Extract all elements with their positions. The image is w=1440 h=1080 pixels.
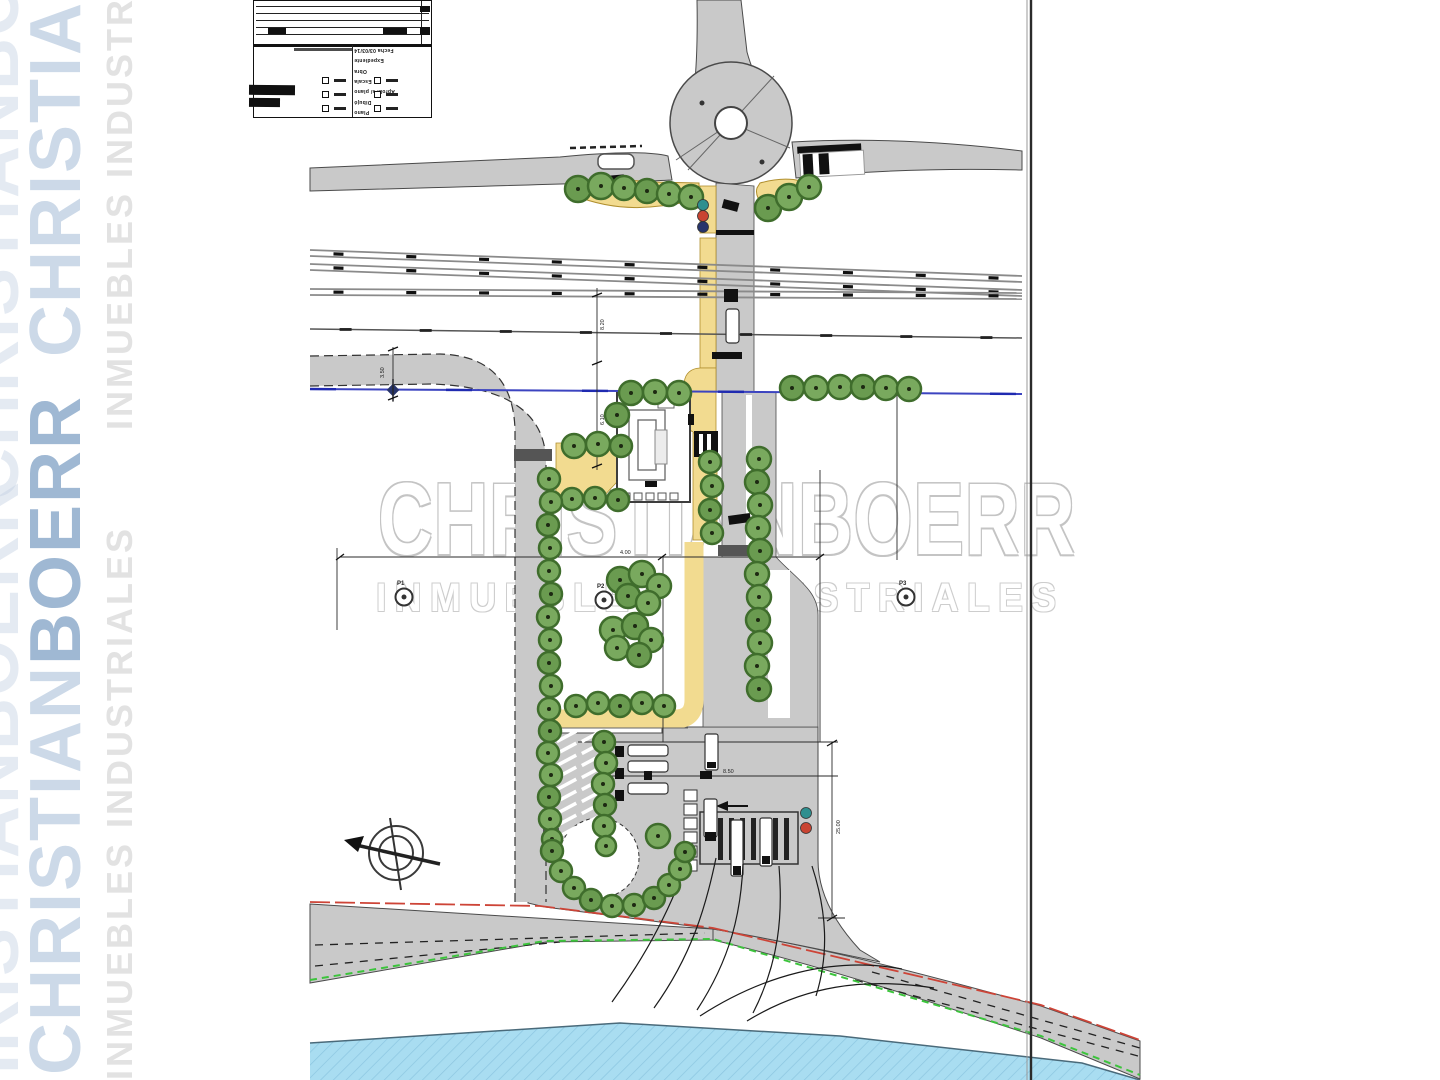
stamp-mark bbox=[249, 98, 280, 107]
checkbox-label-mark bbox=[386, 93, 398, 96]
tree-center bbox=[633, 624, 637, 628]
railway-tie bbox=[406, 291, 416, 294]
vehicle-glyph bbox=[645, 481, 657, 487]
revision-entry bbox=[268, 28, 286, 34]
tree-center bbox=[662, 704, 666, 708]
railway-tie bbox=[843, 293, 853, 296]
stamp-mark bbox=[249, 85, 295, 95]
tree-center bbox=[640, 572, 644, 576]
vehicle-glyph bbox=[615, 746, 624, 757]
vehicle-glyph bbox=[724, 289, 738, 302]
tree-center bbox=[602, 740, 606, 744]
tree-center bbox=[756, 526, 760, 530]
tree-center bbox=[632, 903, 636, 907]
crosswalk-square bbox=[684, 804, 697, 815]
titleblock-note bbox=[294, 48, 352, 51]
plan-shape bbox=[818, 153, 829, 174]
tree-center bbox=[548, 546, 552, 550]
dimension-label: 8.20 bbox=[600, 319, 606, 330]
railway-track bbox=[310, 250, 1022, 276]
tree-center bbox=[790, 386, 794, 390]
railway-tie bbox=[770, 268, 780, 272]
railway-tie bbox=[625, 263, 635, 267]
marker-dot-teal bbox=[698, 200, 709, 211]
railway-tie bbox=[697, 266, 707, 270]
plan-shape bbox=[310, 384, 546, 902]
tree-center bbox=[677, 391, 681, 395]
tree-center bbox=[546, 751, 550, 755]
plan-shape bbox=[760, 160, 765, 165]
revision-entry bbox=[420, 27, 430, 35]
survey-marker-label: P2 bbox=[597, 584, 605, 590]
tree-center bbox=[649, 638, 653, 642]
railway-tie bbox=[916, 274, 926, 278]
plan-shape bbox=[700, 101, 705, 106]
titleblock-checkbox bbox=[322, 91, 329, 98]
tree-center bbox=[572, 444, 576, 448]
tree-center bbox=[637, 653, 641, 657]
railway-tie bbox=[988, 276, 998, 280]
building-detail bbox=[670, 493, 678, 500]
tree-center bbox=[549, 592, 553, 596]
vehicle-glyph bbox=[733, 866, 741, 875]
railway-tie bbox=[333, 266, 343, 270]
tree-center bbox=[604, 844, 608, 848]
checkbox-label-mark bbox=[334, 107, 346, 110]
tree-center bbox=[626, 594, 630, 598]
tree-center bbox=[758, 641, 762, 645]
dimension-label: 8.50 bbox=[723, 769, 734, 775]
titleblock-field-label: Obra bbox=[354, 68, 428, 74]
marker-dot-navy bbox=[698, 222, 709, 233]
vehicle-glyph bbox=[644, 771, 652, 780]
railway-tie bbox=[843, 285, 853, 289]
railway-tie bbox=[552, 292, 562, 295]
marker-dot-red bbox=[801, 823, 812, 834]
water-body bbox=[310, 1023, 1140, 1080]
access-road-west bbox=[310, 354, 546, 902]
railway-tie bbox=[697, 280, 707, 284]
railway-tie bbox=[770, 282, 780, 286]
tree-center bbox=[618, 578, 622, 582]
tree-center bbox=[629, 391, 633, 395]
building-detail bbox=[658, 493, 666, 500]
tree-center bbox=[683, 850, 687, 854]
vehicle-glyph bbox=[688, 414, 694, 425]
truck bbox=[628, 745, 668, 756]
truck bbox=[704, 799, 717, 837]
tree-center bbox=[549, 684, 553, 688]
survey-marker-dot bbox=[602, 598, 607, 603]
tree-center bbox=[708, 460, 712, 464]
tree-center bbox=[755, 664, 759, 668]
tree-center bbox=[646, 601, 650, 605]
tree-center bbox=[814, 386, 818, 390]
road-line-dash bbox=[900, 335, 912, 338]
railway-tie bbox=[552, 274, 562, 278]
railway-tie bbox=[479, 272, 489, 276]
tree-center bbox=[610, 904, 614, 908]
tree-center bbox=[576, 187, 580, 191]
tree-center bbox=[807, 185, 811, 189]
railway-tie bbox=[479, 291, 489, 294]
tree-center bbox=[838, 385, 842, 389]
road-line-dash bbox=[340, 328, 352, 331]
railway-track bbox=[310, 256, 1022, 282]
tree-center bbox=[657, 584, 661, 588]
vehicle-glyph bbox=[700, 771, 712, 779]
titleblock-checkbox bbox=[322, 77, 329, 84]
crosswalk-square bbox=[684, 790, 697, 801]
tree-center bbox=[757, 687, 761, 691]
tree-center bbox=[546, 615, 550, 619]
road-line-dash bbox=[660, 332, 672, 335]
dock-bar bbox=[773, 818, 778, 860]
road-line-dash bbox=[420, 329, 432, 332]
plan-shape bbox=[718, 545, 748, 556]
bus-bay bbox=[598, 154, 634, 169]
tree-center bbox=[615, 646, 619, 650]
plan-shape bbox=[715, 107, 747, 139]
tree-center bbox=[645, 189, 649, 193]
tree-center bbox=[549, 500, 553, 504]
tree-center bbox=[572, 886, 576, 890]
railway-tie bbox=[625, 292, 635, 295]
checkbox-label-mark bbox=[386, 79, 398, 82]
tree-center bbox=[689, 195, 693, 199]
checkbox-label-mark bbox=[334, 93, 346, 96]
road-line-dash bbox=[980, 336, 992, 339]
tree-center bbox=[618, 704, 622, 708]
tree-center bbox=[574, 704, 578, 708]
road-south-1 bbox=[716, 183, 754, 392]
tree-center bbox=[548, 638, 552, 642]
plan-shape bbox=[699, 434, 703, 454]
building-detail bbox=[646, 493, 654, 500]
titleblock-field-label: Dibujó bbox=[354, 99, 428, 105]
railway-tie bbox=[333, 291, 343, 294]
railway-tie bbox=[770, 293, 780, 296]
dimension-label: 3.50 bbox=[380, 367, 386, 378]
checkbox-label-mark bbox=[334, 79, 346, 82]
tree-center bbox=[884, 386, 888, 390]
tree-center bbox=[653, 390, 657, 394]
truck bbox=[628, 761, 668, 772]
vehicle-glyph bbox=[762, 856, 770, 864]
railway-tie bbox=[479, 258, 489, 262]
plan-shape bbox=[700, 238, 716, 368]
railway-track bbox=[310, 295, 1022, 299]
tree-center bbox=[593, 496, 597, 500]
railway-tie bbox=[625, 277, 635, 281]
tree-center bbox=[619, 444, 623, 448]
tree-center bbox=[667, 883, 671, 887]
tree-center bbox=[907, 387, 911, 391]
railway-tie bbox=[697, 293, 707, 296]
tree-center bbox=[550, 849, 554, 853]
railway-tie bbox=[916, 294, 926, 297]
tree-center bbox=[589, 898, 593, 902]
tree-center bbox=[861, 385, 865, 389]
tree-center bbox=[757, 595, 761, 599]
tree-center bbox=[549, 773, 553, 777]
tree-center bbox=[656, 834, 660, 838]
marker-dot-teal bbox=[801, 808, 812, 819]
tree-center bbox=[766, 206, 770, 210]
railway-track bbox=[310, 264, 1022, 290]
tree-center bbox=[546, 523, 550, 527]
railway-track bbox=[310, 289, 1022, 293]
revision-entry bbox=[420, 6, 430, 12]
road-line-dash bbox=[820, 334, 832, 337]
railway-tie bbox=[843, 271, 853, 275]
north-arrow-head bbox=[344, 836, 364, 852]
titleblock-checkbox bbox=[322, 105, 329, 112]
dock-bar bbox=[784, 818, 789, 860]
truck bbox=[726, 309, 739, 343]
plan-shape bbox=[655, 430, 667, 464]
crosswalk-west-road bbox=[514, 449, 552, 461]
vehicle-glyph bbox=[707, 762, 716, 768]
survey-marker-label: P3 bbox=[899, 581, 907, 587]
tree-center bbox=[710, 484, 714, 488]
tree-center bbox=[603, 803, 607, 807]
revision-entry bbox=[383, 28, 407, 34]
tree-center bbox=[547, 661, 551, 665]
tree-center bbox=[758, 503, 762, 507]
tree-center bbox=[548, 817, 552, 821]
tree-center bbox=[547, 477, 551, 481]
tree-center bbox=[602, 824, 606, 828]
railway-tie bbox=[989, 294, 999, 297]
titleblock-field-label: Fecha 03/03/14 bbox=[354, 47, 428, 53]
survey-marker-label: P1 bbox=[397, 581, 405, 587]
tree-center bbox=[616, 498, 620, 502]
dock-bar bbox=[718, 818, 723, 860]
truck bbox=[628, 783, 668, 794]
marker-dot-red bbox=[698, 211, 709, 222]
road-line-dash bbox=[580, 331, 592, 334]
tree-center bbox=[756, 618, 760, 622]
title-block: Fecha 03/03/14ExpedienteObraEscalaAprob.… bbox=[253, 0, 432, 118]
revision-line bbox=[256, 34, 429, 35]
site-plan-drawing: 4.008.206.103.5025.008.50P1P2P3 bbox=[0, 0, 1440, 1080]
building-detail bbox=[634, 493, 642, 500]
survey-marker-dot bbox=[904, 595, 909, 600]
dimension-label: 25.00 bbox=[836, 820, 842, 834]
tree-center bbox=[678, 867, 682, 871]
plan-shape bbox=[310, 354, 515, 902]
revision-line bbox=[256, 13, 429, 14]
road-line-dash bbox=[740, 333, 752, 336]
tree-center bbox=[599, 184, 603, 188]
checkbox-label-mark bbox=[386, 107, 398, 110]
plan-shape bbox=[570, 146, 642, 148]
titleblock-field-label: Expediente bbox=[354, 57, 428, 63]
tree-center bbox=[615, 413, 619, 417]
tree-center bbox=[596, 442, 600, 446]
vehicle-glyph bbox=[705, 832, 716, 841]
tree-center bbox=[787, 195, 791, 199]
railway-tie bbox=[406, 269, 416, 273]
titleblock-checkbox bbox=[374, 91, 381, 98]
tree-center bbox=[604, 761, 608, 765]
tree-center bbox=[710, 531, 714, 535]
tree-center bbox=[559, 869, 563, 873]
tree-center bbox=[667, 192, 671, 196]
vehicle-glyph bbox=[712, 352, 742, 359]
crosswalk-square bbox=[684, 818, 697, 829]
tree-center bbox=[548, 729, 552, 733]
titleblock-checkbox bbox=[374, 105, 381, 112]
tree-center bbox=[570, 497, 574, 501]
railway-tie bbox=[333, 252, 343, 256]
dock-bar bbox=[751, 818, 756, 860]
page-canvas: CHRISTIANBOERR CHRISTIANBOERR CHRISTIANB… bbox=[0, 0, 1440, 1080]
road-line-dash bbox=[500, 330, 512, 333]
vehicle-glyph bbox=[716, 230, 754, 235]
survey-marker-dot bbox=[402, 595, 407, 600]
tree-center bbox=[622, 186, 626, 190]
tree-center bbox=[601, 782, 605, 786]
vehicle-glyph bbox=[615, 768, 624, 779]
tree-center bbox=[611, 628, 615, 632]
tree-center bbox=[640, 701, 644, 705]
tree-center bbox=[758, 549, 762, 553]
tree-center bbox=[652, 896, 656, 900]
railway-tie bbox=[406, 255, 416, 259]
tree-center bbox=[547, 569, 551, 573]
railway-tie bbox=[916, 288, 926, 292]
dimension-label: 4.00 bbox=[620, 550, 631, 556]
titleblock-divider bbox=[352, 45, 353, 117]
titleblock-checkbox bbox=[374, 77, 381, 84]
revision-line bbox=[256, 6, 429, 7]
tree-center bbox=[755, 480, 759, 484]
vehicle-glyph bbox=[615, 790, 624, 801]
tree-center bbox=[757, 457, 761, 461]
revision-line bbox=[256, 20, 429, 21]
railway-tie bbox=[552, 260, 562, 264]
plan-shape bbox=[803, 154, 814, 175]
tree-center bbox=[547, 795, 551, 799]
tree-center bbox=[596, 701, 600, 705]
tree-center bbox=[708, 508, 712, 512]
tree-center bbox=[755, 572, 759, 576]
tree-center bbox=[547, 707, 551, 711]
